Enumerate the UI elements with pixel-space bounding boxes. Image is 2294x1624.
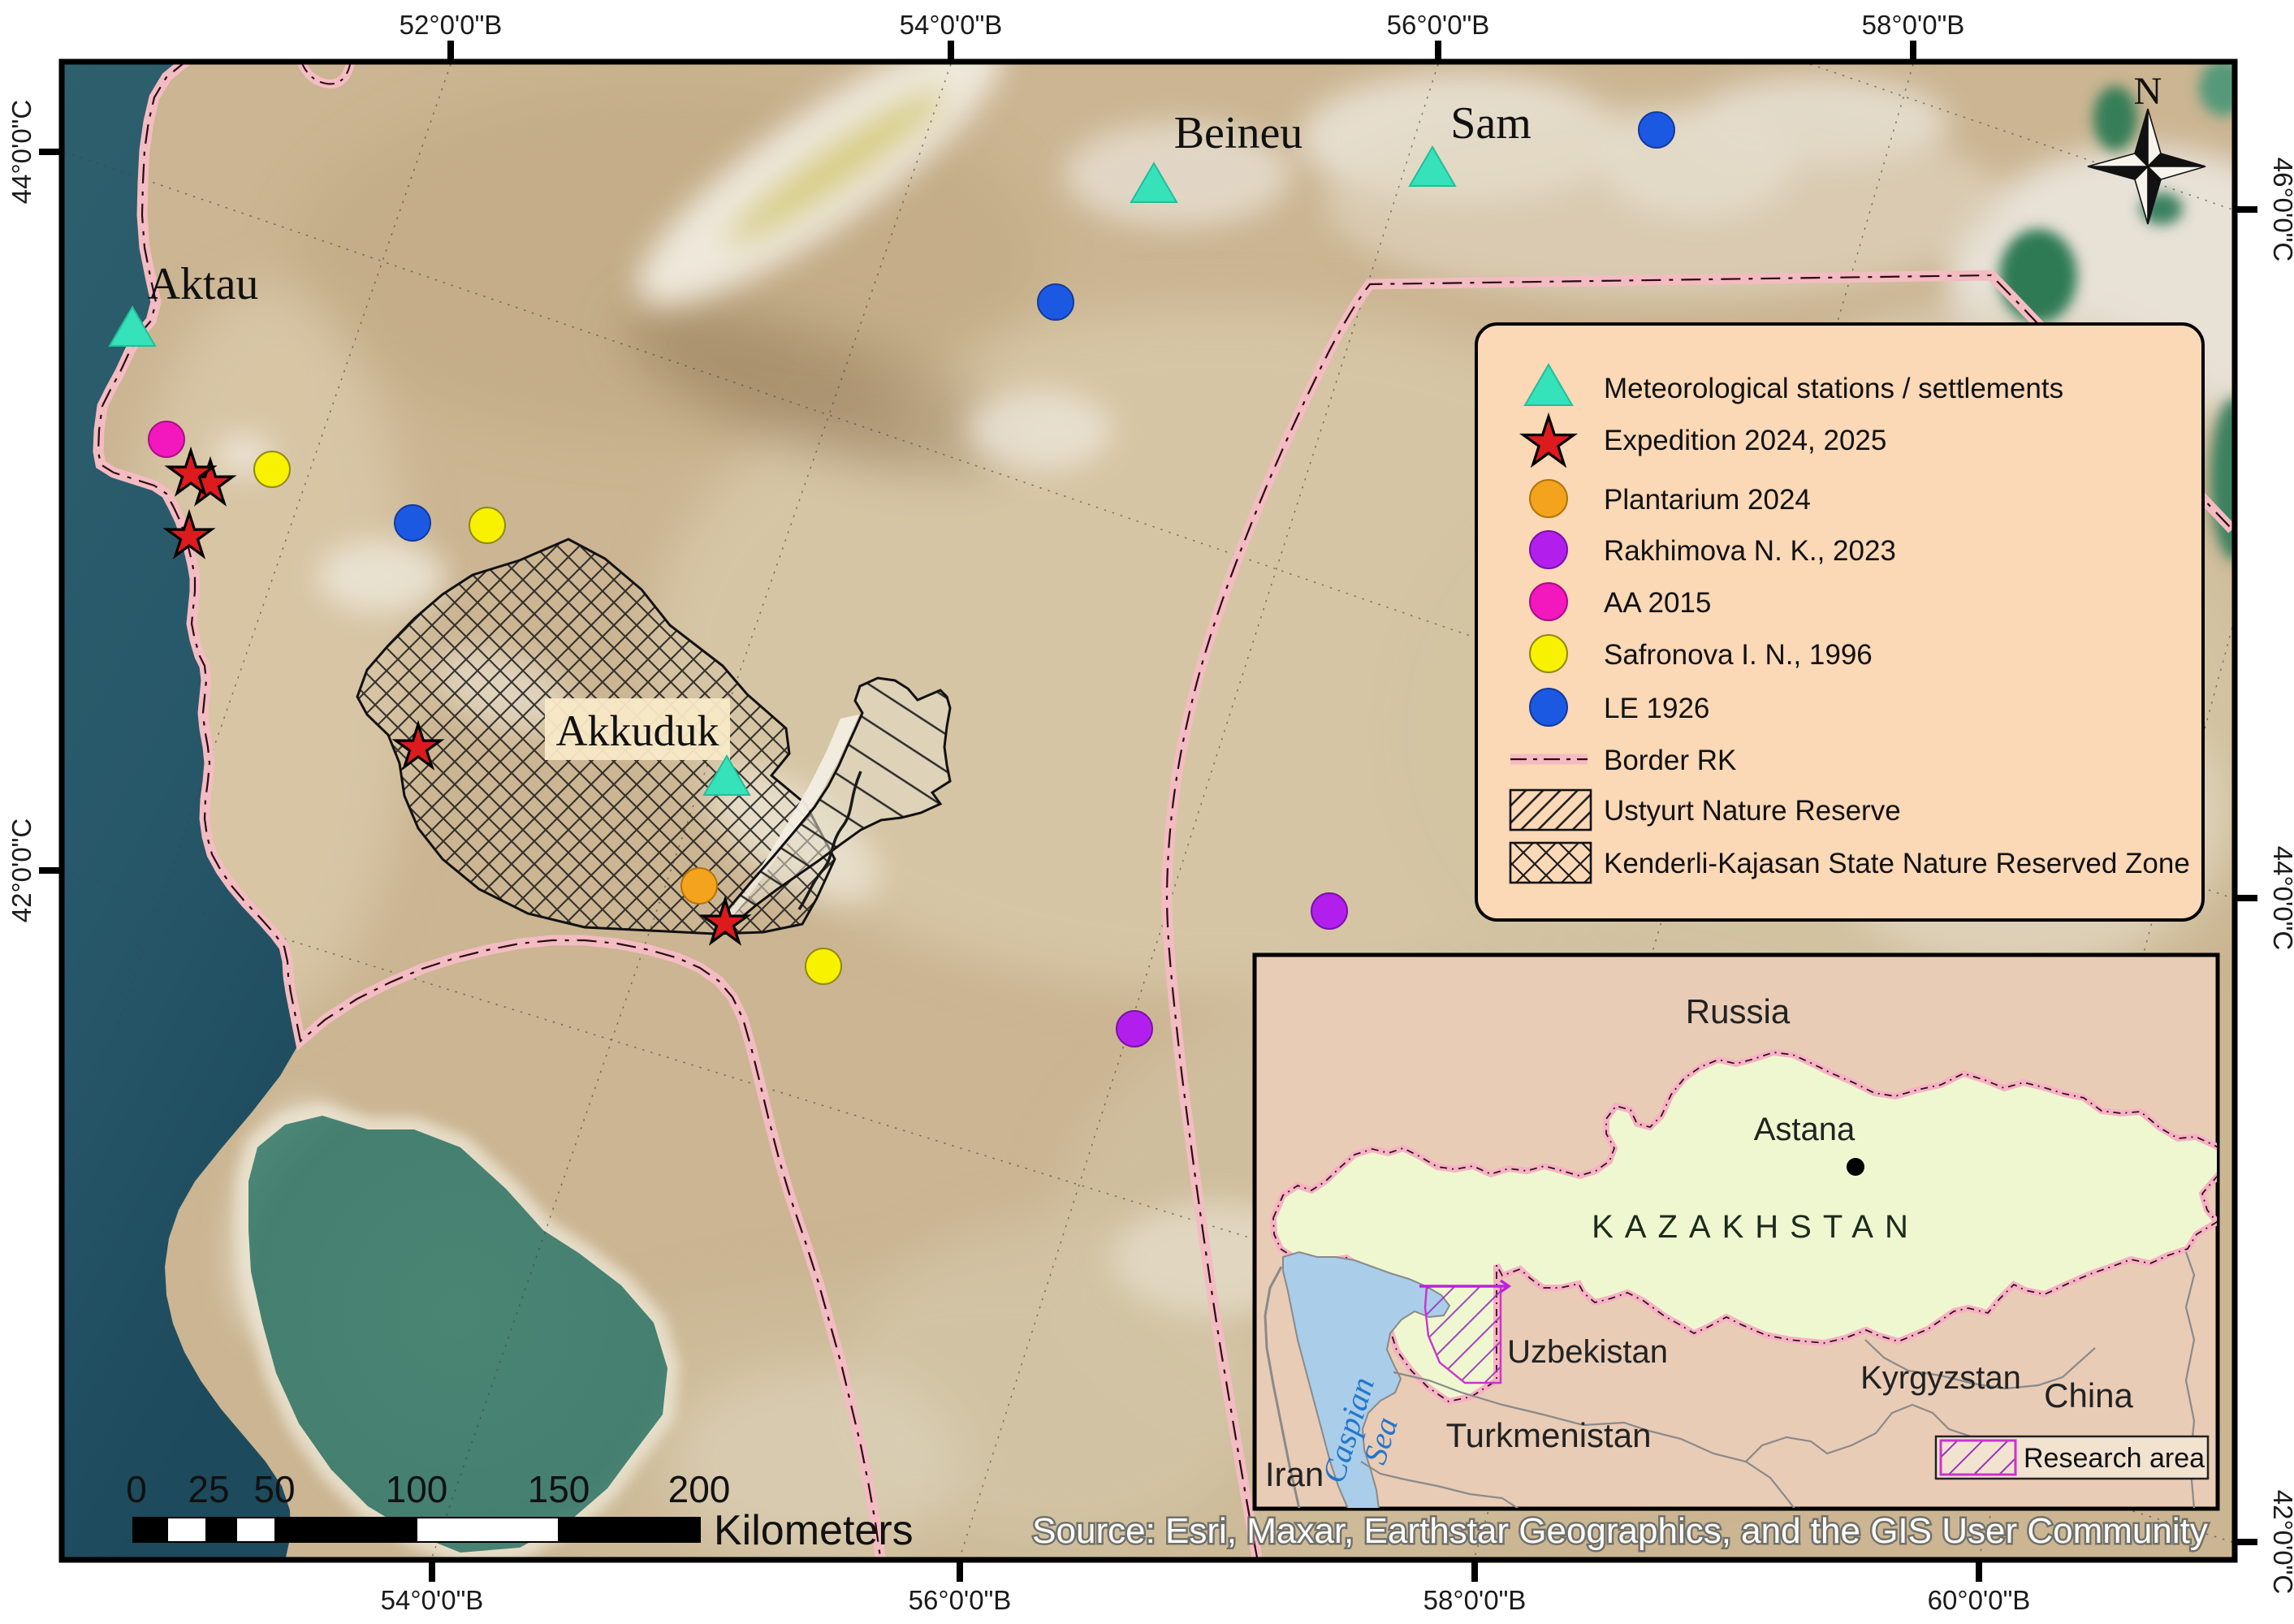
svg-text:150: 150 [528, 1468, 590, 1510]
svg-text:44°0'0"C: 44°0'0"C [2268, 846, 2294, 950]
svg-text:Aktau: Aktau [148, 259, 259, 309]
svg-text:42°0'0"C: 42°0'0"C [6, 818, 37, 922]
svg-text:Plantarium 2024: Plantarium 2024 [1604, 484, 1811, 516]
svg-text:Russia: Russia [1686, 992, 1791, 1030]
svg-text:Border RK: Border RK [1604, 745, 1736, 776]
svg-text:Turkmenistan: Turkmenistan [1446, 1416, 1652, 1454]
svg-text:LE 1926: LE 1926 [1604, 693, 1709, 724]
svg-text:Expedition 2024, 2025: Expedition 2024, 2025 [1604, 425, 1886, 456]
svg-text:AA 2015: AA 2015 [1604, 587, 1711, 619]
svg-text:60°0'0"B: 60°0'0"B [1928, 1585, 2031, 1615]
svg-text:Kilometers: Kilometers [714, 1507, 914, 1554]
svg-text:Akkuduk: Akkuduk [556, 706, 719, 755]
svg-text:Ustyurt Nature Reserve: Ustyurt Nature Reserve [1604, 795, 1901, 827]
svg-text:Source: Esri, Maxar, Earthstar: Source: Esri, Maxar, Earthstar Geographi… [1032, 1511, 2208, 1551]
svg-text:42°0'0"C: 42°0'0"C [2268, 1490, 2294, 1594]
svg-text:44°0'0"C: 44°0'0"C [6, 100, 37, 204]
svg-text:N: N [2134, 70, 2162, 113]
svg-text:56°0'0"B: 56°0'0"B [909, 1585, 1012, 1615]
svg-text:50: 50 [253, 1468, 295, 1510]
svg-text:Astana: Astana [1754, 1112, 1856, 1147]
svg-text:200: 200 [668, 1468, 731, 1510]
svg-text:KAZAKHSTAN: KAZAKHSTAN [1592, 1209, 1920, 1245]
svg-text:Sam: Sam [1450, 98, 1531, 149]
svg-text:0: 0 [126, 1468, 147, 1510]
svg-text:China: China [2044, 1376, 2133, 1415]
svg-text:Research area: Research area [2024, 1443, 2205, 1474]
svg-text:56°0'0"B: 56°0'0"B [1387, 10, 1490, 40]
svg-text:100: 100 [386, 1468, 448, 1510]
svg-text:Kyrgyzstan: Kyrgyzstan [1860, 1360, 2021, 1396]
svg-text:Beineu: Beineu [1174, 108, 1303, 158]
svg-text:54°0'0"B: 54°0'0"B [381, 1585, 484, 1615]
svg-text:58°0'0"B: 58°0'0"B [1862, 10, 1965, 40]
svg-text:54°0'0"B: 54°0'0"B [900, 10, 1003, 40]
svg-text:46°0'0"C: 46°0'0"C [2268, 158, 2294, 261]
svg-text:52°0'0"B: 52°0'0"B [400, 10, 503, 40]
svg-text:Meteorological stations / sett: Meteorological stations / settlements [1604, 373, 2063, 404]
svg-text:58°0'0"B: 58°0'0"B [1423, 1585, 1527, 1615]
svg-text:25: 25 [188, 1468, 229, 1510]
svg-text:Kenderli-Kajasan State Nature: Kenderli-Kajasan State Nature Reserved Z… [1604, 848, 2190, 879]
svg-text:Rakhimova N. K., 2023: Rakhimova N. K., 2023 [1604, 535, 1896, 567]
svg-text:Uzbekistan: Uzbekistan [1507, 1334, 1668, 1370]
svg-text:Safronova I. N., 1996: Safronova I. N., 1996 [1604, 639, 1873, 671]
